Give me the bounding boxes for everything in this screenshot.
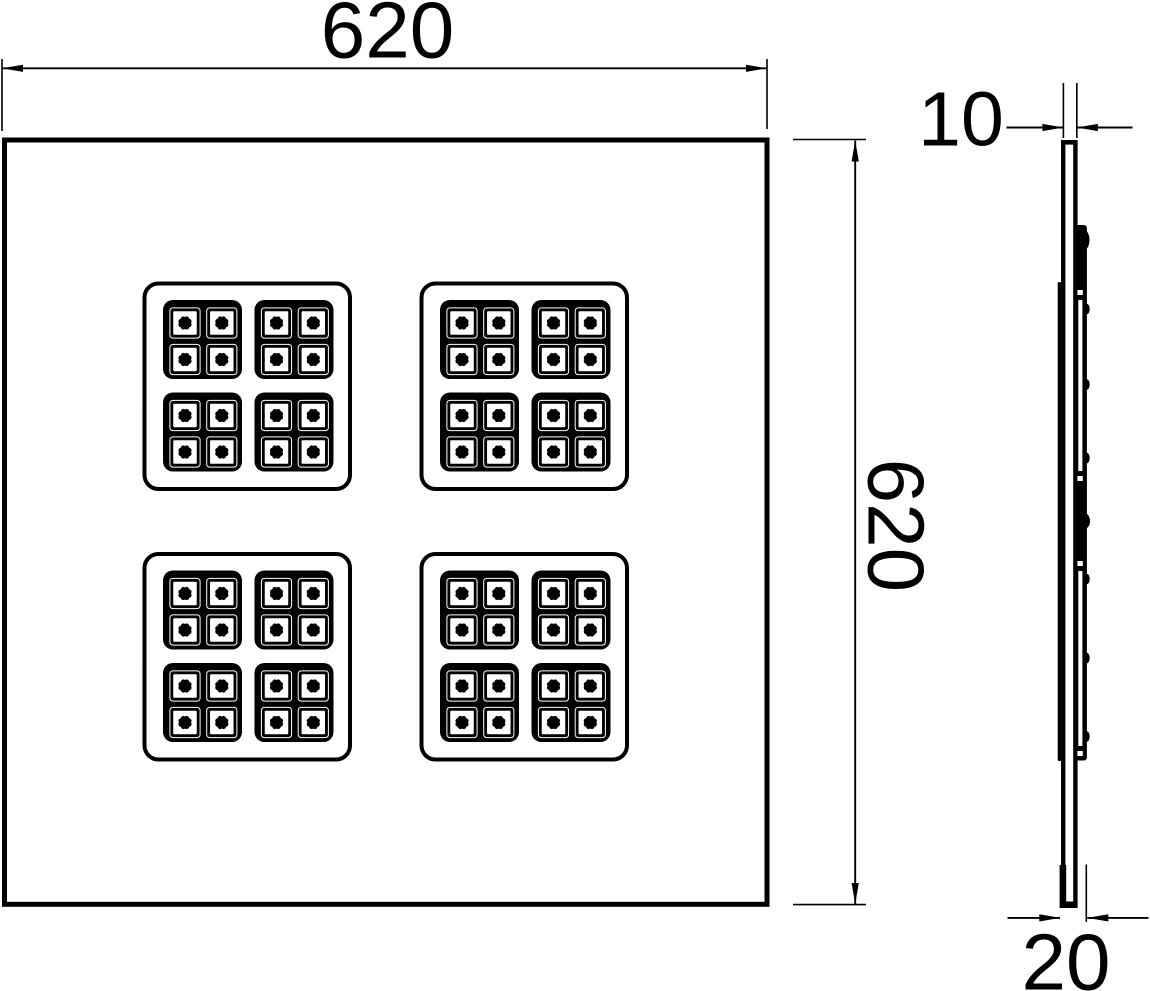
svg-text:620: 620 xyxy=(851,459,940,592)
svg-text:20: 20 xyxy=(1022,917,1111,991)
svg-text:620: 620 xyxy=(321,0,454,75)
svg-text:10: 10 xyxy=(918,76,1004,162)
